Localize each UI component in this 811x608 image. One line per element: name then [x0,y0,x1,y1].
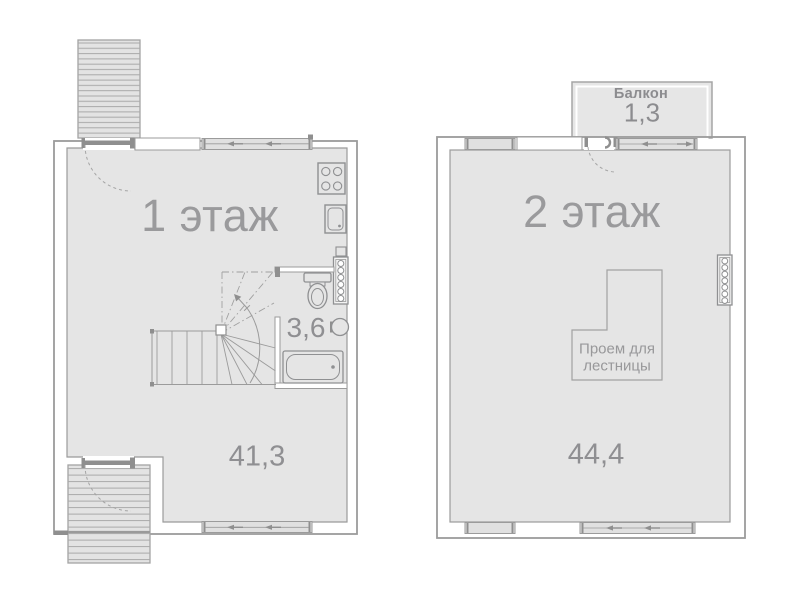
stair-opening-label: Проем для лестницы [564,342,670,375]
floor2-title: 2 этаж [523,186,661,238]
window-floor2-bottom-left [465,523,515,534]
bathtub-icon [283,351,343,383]
floor1-title: 1 этаж [141,190,279,242]
window-floor1-bottom [202,522,312,533]
exterior-staircase-top [78,40,140,138]
exterior-staircase-bottom [54,465,150,563]
towel-radiator-icon-floor2 [718,255,733,305]
floorplan-drawing [0,0,811,608]
balcony-area-label: 1,3 [624,98,660,129]
boiler-box-icon [336,247,346,256]
floor2-area-label: 44,4 [568,439,624,472]
stove-icon [318,163,345,194]
window-floor2-top-right [616,139,697,150]
floorplan-canvas: 1 этаж 41,3 3,6 2 этаж 44,4 Балкон 1,3 П… [0,0,811,608]
kitchen-sink-icon [325,205,346,233]
floor1-area-label: 41,3 [229,441,285,474]
towel-radiator-icon [334,257,349,304]
bathroom-area-label: 3,6 [287,312,326,344]
window-floor2-top-left [465,139,515,150]
window-floor2-bottom-right [580,523,695,534]
window-floor2-top-mid [517,137,582,150]
window-floor1-top [202,135,313,150]
window-floor1-top-left [135,138,200,150]
floor1-plan [54,40,357,563]
